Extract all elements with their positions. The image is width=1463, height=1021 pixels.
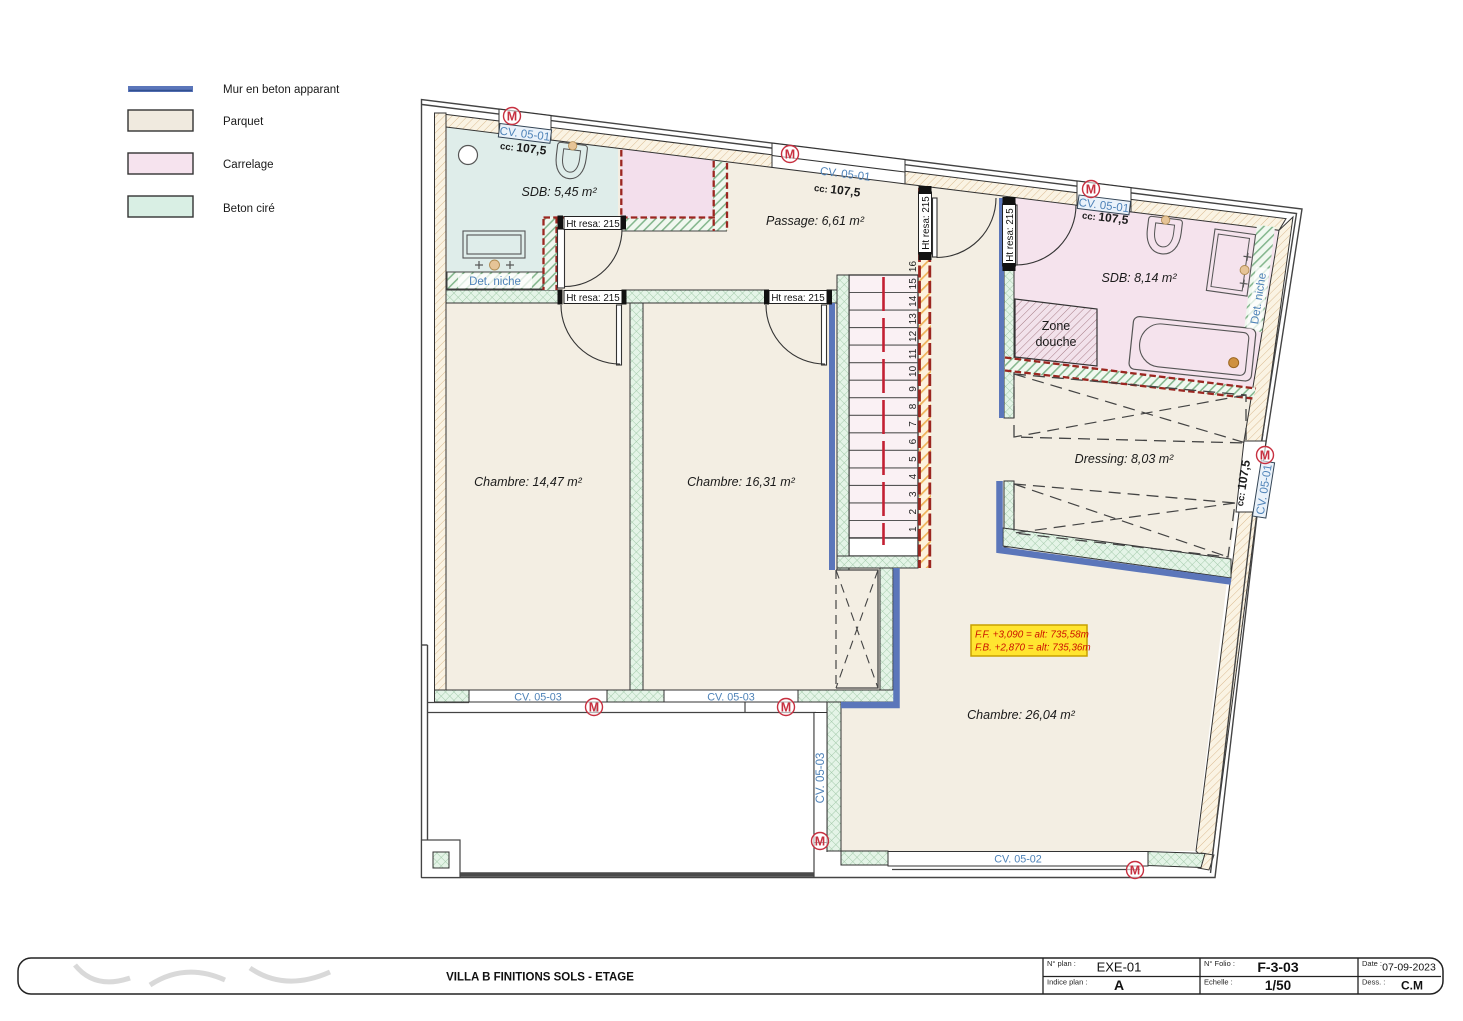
svg-text:14: 14 xyxy=(908,295,919,307)
svg-text:A: A xyxy=(1114,977,1124,993)
svg-text:Chambre: 16,31 m²: Chambre: 16,31 m² xyxy=(687,475,796,489)
svg-text:CV. 05-03: CV. 05-03 xyxy=(815,753,827,804)
svg-text:Beton ciré: Beton ciré xyxy=(223,203,275,215)
svg-text:Ht resa: 215: Ht resa: 215 xyxy=(771,293,825,304)
svg-text:CV. 05-02: CV. 05-02 xyxy=(994,854,1042,866)
svg-text:9: 9 xyxy=(908,386,919,392)
svg-text:Parquet: Parquet xyxy=(223,116,264,128)
svg-text:M: M xyxy=(815,835,825,849)
svg-text:Carrelage: Carrelage xyxy=(223,159,274,171)
svg-text:N° plan :: N° plan : xyxy=(1047,959,1076,968)
svg-text:13: 13 xyxy=(908,313,919,325)
svg-text:11: 11 xyxy=(908,348,919,359)
svg-text:M: M xyxy=(781,701,791,715)
svg-text:Chambre: 26,04 m²: Chambre: 26,04 m² xyxy=(967,708,1076,722)
svg-text:2: 2 xyxy=(908,508,919,514)
svg-text:M: M xyxy=(507,110,517,124)
svg-text:F.B. +2,870 = alt: 735,36m: F.B. +2,870 = alt: 735,36m xyxy=(975,643,1091,654)
svg-text:1: 1 xyxy=(908,526,919,532)
svg-text:F.F. +3,090 = alt: 735,58m: F.F. +3,090 = alt: 735,58m xyxy=(975,630,1089,641)
svg-text:6: 6 xyxy=(908,438,919,444)
svg-text:Passage: 6,61 m²: Passage: 6,61 m² xyxy=(766,214,865,228)
svg-text:M: M xyxy=(785,148,795,162)
svg-text:Ht resa: 215: Ht resa: 215 xyxy=(1005,208,1016,262)
svg-text:16: 16 xyxy=(908,261,919,273)
svg-text:M: M xyxy=(1086,183,1096,197)
svg-text:Dess. :: Dess. : xyxy=(1362,978,1385,987)
svg-text:Chambre: 14,47 m²: Chambre: 14,47 m² xyxy=(474,475,583,489)
svg-text:12: 12 xyxy=(908,330,919,342)
svg-text:15: 15 xyxy=(908,278,919,290)
svg-text:Ht resa: 215: Ht resa: 215 xyxy=(566,219,620,230)
svg-text:Date :: Date : xyxy=(1362,959,1382,968)
svg-text:SDB: 5,45 m²: SDB: 5,45 m² xyxy=(521,185,597,199)
svg-text:M: M xyxy=(1260,449,1270,463)
svg-text:douche: douche xyxy=(1035,335,1076,349)
svg-text:C.M: C.M xyxy=(1401,979,1423,993)
svg-text:Ht resa: 215: Ht resa: 215 xyxy=(921,196,932,250)
svg-text:Dressing: 8,03 m²: Dressing: 8,03 m² xyxy=(1075,452,1174,466)
svg-text:5: 5 xyxy=(908,456,919,462)
svg-text:4: 4 xyxy=(908,473,919,479)
svg-text:CV. 05-03: CV. 05-03 xyxy=(514,692,562,704)
svg-text:3: 3 xyxy=(908,491,919,497)
svg-text:Ht resa: 215: Ht resa: 215 xyxy=(566,293,620,304)
svg-text:Det. niche: Det. niche xyxy=(469,276,521,288)
svg-text:CV. 05-03: CV. 05-03 xyxy=(707,692,755,704)
svg-text:N° Folio :: N° Folio : xyxy=(1204,959,1235,968)
svg-text:7: 7 xyxy=(908,421,919,427)
svg-text:Zone: Zone xyxy=(1042,319,1071,333)
svg-text:F-3-03: F-3-03 xyxy=(1257,959,1298,975)
svg-text:VILLA B FINITIONS SOLS - ETAG: VILLA B FINITIONS SOLS - ETAGE xyxy=(446,972,634,984)
svg-text:M: M xyxy=(1130,864,1140,878)
svg-text:M: M xyxy=(589,701,599,715)
svg-text:Mur en beton apparant: Mur en beton apparant xyxy=(223,84,340,96)
svg-text:EXE-01: EXE-01 xyxy=(1097,960,1142,975)
svg-text:07-09-2023: 07-09-2023 xyxy=(1382,962,1436,974)
svg-text:Indice plan :: Indice plan : xyxy=(1047,978,1087,987)
svg-text:SDB: 8,14 m²: SDB: 8,14 m² xyxy=(1101,271,1177,285)
svg-text:8: 8 xyxy=(908,403,919,409)
svg-text:Echelle :: Echelle : xyxy=(1204,978,1233,987)
svg-text:1/50: 1/50 xyxy=(1265,978,1291,993)
svg-text:10: 10 xyxy=(908,365,919,377)
